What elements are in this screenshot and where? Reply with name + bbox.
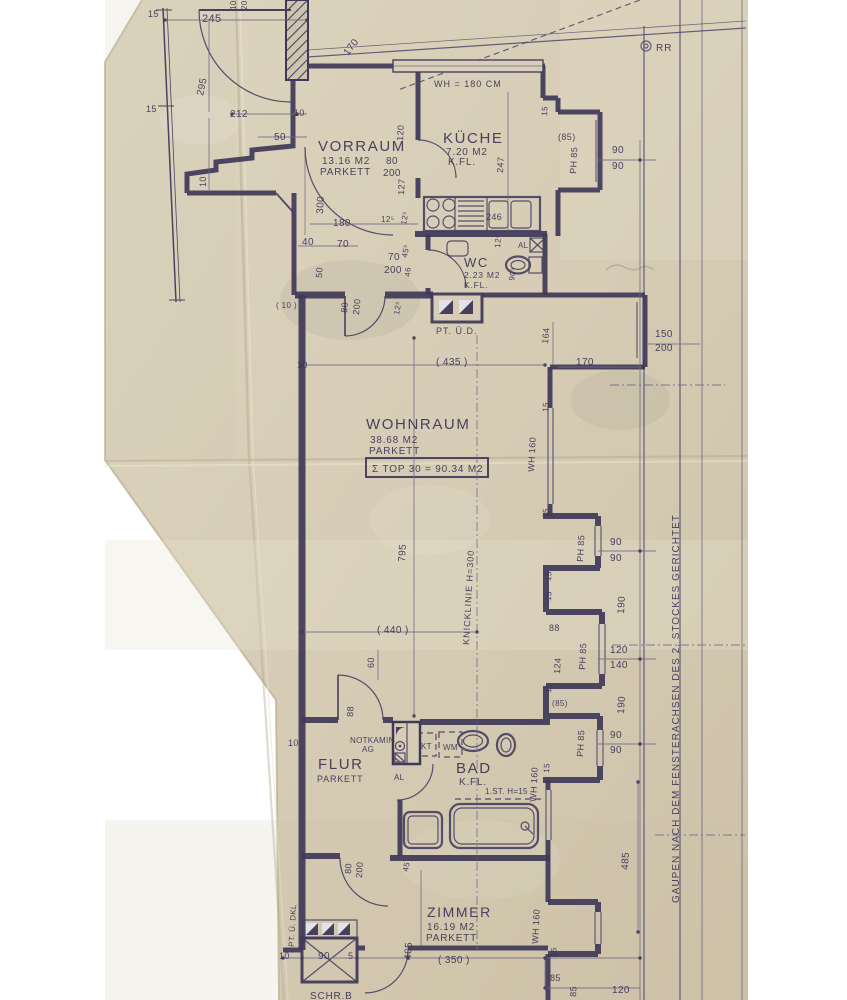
dim-15-b: 15 (146, 104, 157, 114)
dim-15-i: 15 (549, 947, 559, 957)
dim-15-a: 15 (148, 9, 159, 19)
dim-405: 405 (403, 942, 415, 960)
dim-80-k: 80 (386, 156, 398, 167)
label-wh180: WH = 180 CM (434, 79, 502, 89)
room-vorraum: VORRAUM (318, 138, 406, 155)
dim-15-e: 15 (544, 571, 554, 581)
dim-190-a: 190 (616, 596, 628, 614)
dim-170-b: 170 (576, 357, 594, 368)
label-schrb: SCHR.B (310, 991, 353, 1000)
room-zimmer: ZIMMER (427, 904, 492, 920)
dim-90-d: 90 (610, 553, 622, 564)
dim-15-d: 15 (541, 508, 551, 518)
dim-85-d: 85 (550, 973, 561, 983)
dim-124: 124 (552, 657, 563, 674)
room-bad: BAD (456, 760, 492, 777)
dim-120-b: 120 (612, 985, 630, 996)
dim-125-c: 12⁵ (493, 234, 503, 248)
label-rr: RR (656, 43, 672, 54)
dim-200-k: 200 (383, 168, 401, 179)
dim-120-v: 120 (395, 124, 406, 141)
dim-wh160-a: WH 160 (526, 437, 538, 472)
dim-212: 212 (230, 109, 248, 120)
dim-435: ( 435 ) (436, 357, 468, 368)
dim-70-a: 70 (337, 239, 349, 250)
dim-40: 40 (302, 237, 314, 248)
dim-15-h: 15 (542, 763, 552, 773)
dim-247: 247 (495, 156, 506, 173)
dim-440: ( 440 ) (377, 625, 409, 636)
dim-164: 164 (540, 327, 551, 344)
floor-bad: K.FL. (459, 777, 487, 788)
label-wm: WM (443, 743, 458, 752)
dim-80-z: 80 (343, 863, 354, 874)
dim-90-b: 90 (612, 161, 624, 172)
floor-kueche: K.FL. (448, 157, 476, 168)
dim-140: 140 (610, 660, 628, 671)
dim-10-b: 10 (294, 108, 305, 118)
dim-85-e: 85 (568, 986, 579, 997)
area-wc: 2.23 M2 (464, 270, 500, 280)
paper-sheet (0, 0, 847, 1000)
dim-60: 60 (366, 657, 376, 668)
dim-88-door: 88 (345, 706, 356, 717)
room-flur: FLUR (318, 756, 364, 773)
dim-90-g: 90 (318, 951, 330, 962)
dim-20-top: 20 (240, 0, 249, 10)
area-wohnraum: 38.68 M2 (370, 435, 418, 446)
dim-120: 120 (610, 645, 628, 656)
dim-200-e: 200 (351, 298, 362, 315)
dim-70-b: 70 (388, 252, 400, 263)
dim-200-z: 200 (354, 861, 365, 878)
dim-wh160-c: WH 160 (530, 909, 542, 944)
dim-ph85-d: PH 85 (575, 730, 586, 758)
label-notkamin: NOTKAMIN (350, 736, 395, 745)
dim-ph85-bay1: PH 85 (568, 147, 579, 175)
dim-10-f: 10 (279, 951, 290, 961)
dim-15-f: 15 (544, 591, 554, 601)
dim-180: 180 (333, 218, 351, 229)
floor-wohnraum: PARKETT (369, 446, 420, 457)
dim-85-c: (85) (552, 699, 568, 708)
dim-15-c: 15 (541, 402, 551, 412)
dim-200-w: 200 (655, 343, 673, 354)
room-wc: WC (464, 255, 489, 270)
dim-190-b: 190 (616, 696, 628, 714)
dim-10-e: 10 (288, 738, 299, 748)
dim-wh160-b: WH 160 (528, 767, 540, 802)
label-top-sum: Σ TOP 30 = 90.34 M2 (372, 464, 483, 475)
dim-15-g: 15 (544, 683, 554, 693)
label-gaupen: GAUPEN NACH DEM FENSTERACHSEN DES 2. STO… (671, 514, 682, 903)
dim-15-bay1: 15 (540, 106, 550, 116)
dim-200-b: 200 (384, 265, 402, 276)
dim-80-e: 80 (339, 302, 350, 314)
dim-350: ( 350 ) (438, 955, 470, 966)
label-al-b: AL (394, 773, 405, 782)
dim-50-a: 50 (274, 132, 286, 143)
floor-zimmer: PARKETT (426, 933, 477, 944)
room-kueche: KÜCHE (443, 129, 504, 147)
floor-flur: PARKETT (317, 774, 363, 784)
dim-10-top: 10 (229, 0, 238, 10)
dim-246: 246 (486, 212, 502, 222)
dim-127-v: 127 (396, 178, 407, 195)
label-stufe: 1.ST. H=15 (485, 787, 528, 796)
dim-90-e: 90 (610, 730, 622, 741)
dim-90-a: 90 (612, 145, 624, 156)
label-kt: KT (421, 742, 432, 751)
dim-10-d: 10 (297, 360, 308, 370)
label-al-wc: AL (518, 241, 529, 250)
dim-88-b: 88 (549, 623, 560, 633)
dim-10-c: 10 (198, 176, 208, 187)
room-wohnraum: WOHNRAUM (366, 416, 470, 433)
dim-795: 795 (397, 544, 409, 562)
floor-wc: K.FL. (464, 280, 488, 290)
area-zimmer: 16.19 M2 (427, 922, 475, 933)
dim-150: 150 (655, 329, 673, 340)
dim-paren10: ( 10 ) (276, 301, 297, 310)
label-pt-ued: PT. Ü.D. (436, 326, 478, 336)
dim-125-a: 12⁵ (381, 215, 394, 224)
floor-plan-scan: { "document": { "kind": "scanned archite… (0, 0, 847, 1000)
dim-ph85-b: PH 85 (575, 535, 586, 563)
floor-vorraum: PARKETT (320, 167, 371, 178)
dim-90-c: 90 (610, 537, 622, 548)
dim-ph85-c: PH 85 (577, 643, 588, 671)
dim-5: 5 (348, 951, 353, 961)
floor-plan-svg: 15245102029517015212105010WH = 180 CMRRK… (0, 0, 847, 1000)
dim-50-v: 50 (314, 267, 325, 278)
dim-90-f: 90 (610, 745, 622, 756)
dim-46-v: 46 (403, 267, 413, 278)
dim-485: 485 (620, 852, 632, 870)
label-ag: AG (362, 745, 374, 754)
dim-85-bay1: (85) (558, 132, 576, 142)
area-vorraum: 13.16 M2 (322, 156, 370, 167)
dim-45-z: 45 (401, 861, 412, 872)
dim-300-v: 300 (315, 196, 327, 214)
dim-245: 245 (202, 13, 222, 25)
hatched-wall (286, 0, 308, 80)
